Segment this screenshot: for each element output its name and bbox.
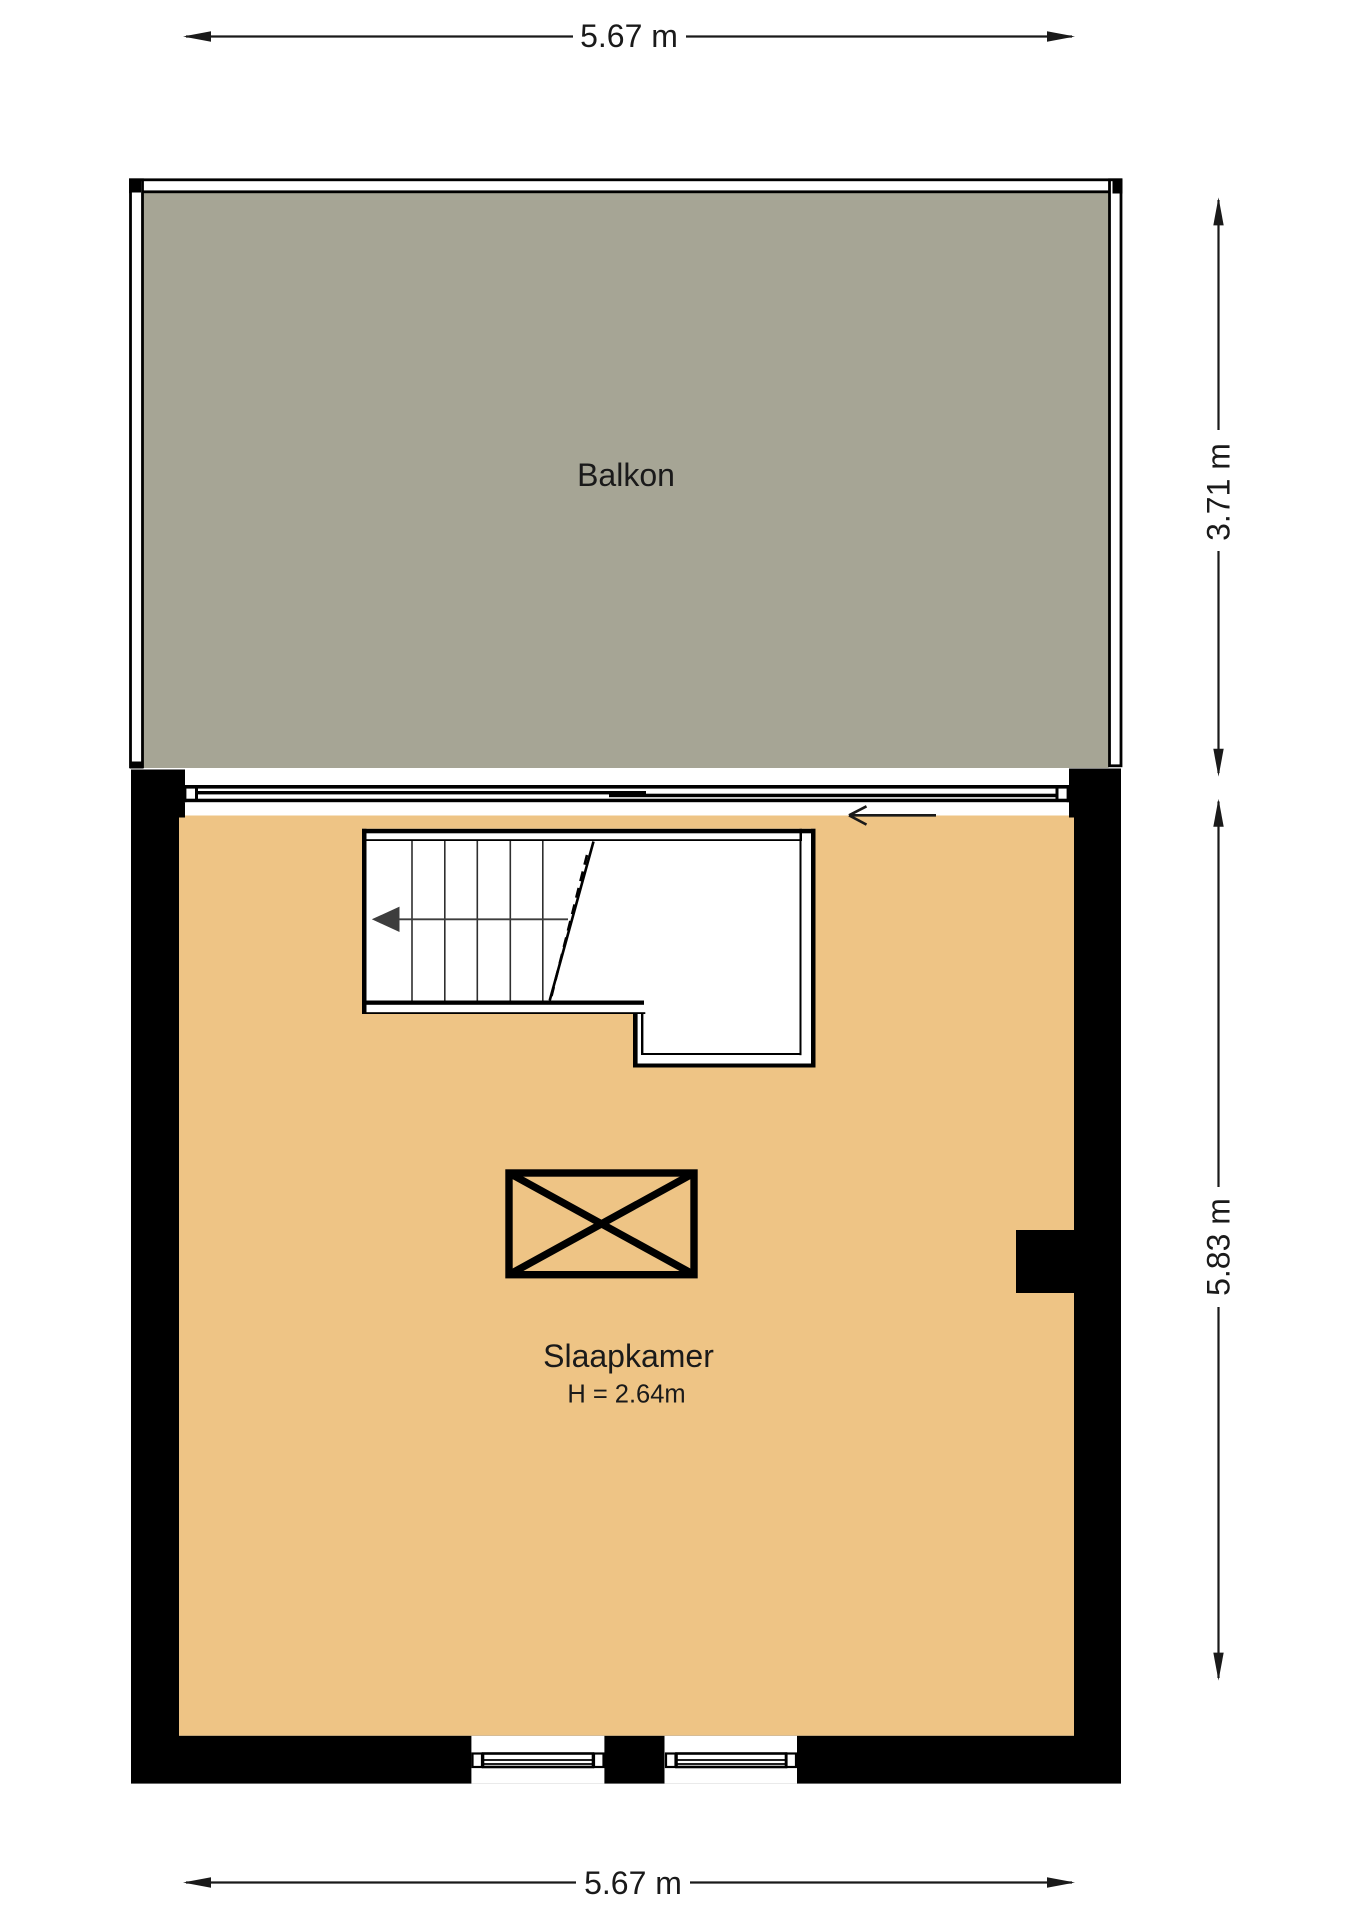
svg-text:Slaapkamer: Slaapkamer xyxy=(543,1338,714,1374)
svg-text:5.67 m: 5.67 m xyxy=(584,1865,682,1901)
svg-text:3.71 m: 3.71 m xyxy=(1201,443,1237,541)
svg-text:H = 2.64m: H = 2.64m xyxy=(567,1381,685,1409)
svg-text:5.67 m: 5.67 m xyxy=(580,18,678,54)
svg-text:5.83 m: 5.83 m xyxy=(1201,1198,1237,1296)
svg-text:Balkon: Balkon xyxy=(577,457,675,493)
